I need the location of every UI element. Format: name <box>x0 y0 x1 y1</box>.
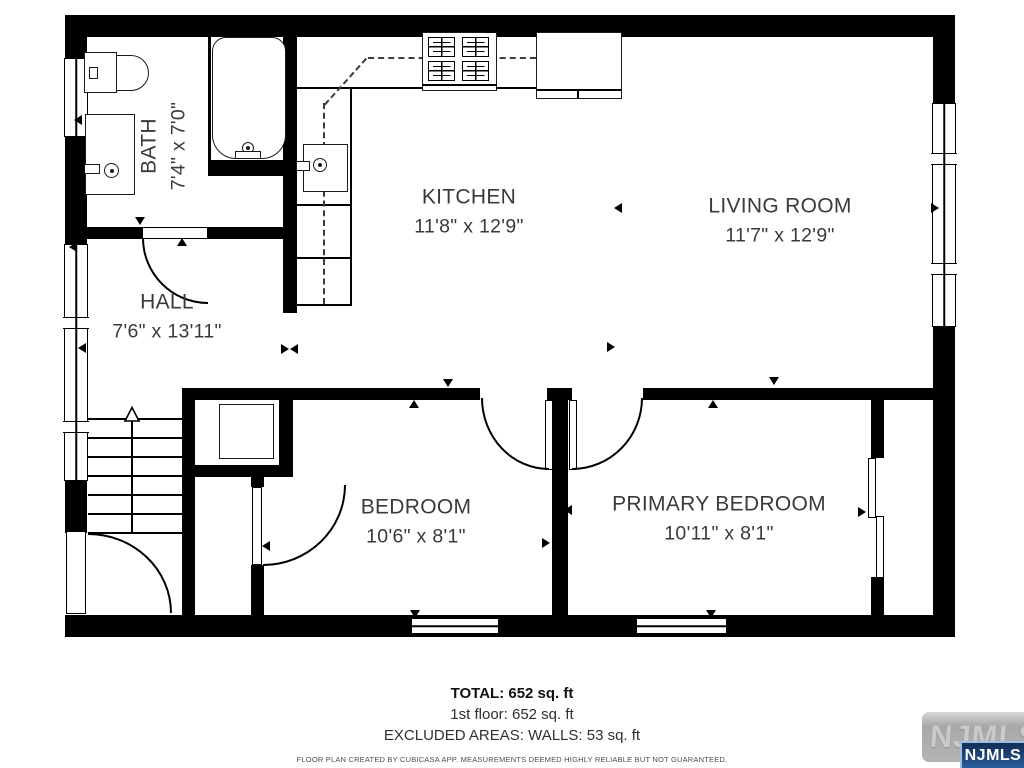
window-mullion <box>931 153 957 165</box>
room-dims: 7'4" x 7'0" <box>165 102 193 191</box>
direction-marker <box>409 400 419 408</box>
room-name: BATH <box>135 102 165 191</box>
room-name: HALL <box>112 288 221 318</box>
stove-burner <box>428 61 455 81</box>
primary-door-swing <box>572 398 643 470</box>
direction-marker <box>262 541 270 551</box>
room-name: KITCHEN <box>414 183 523 213</box>
disclaimer: FLOOR PLAN CREATED BY CUBICASA APP. MEAS… <box>0 755 1024 764</box>
stove-front-edge <box>422 84 497 86</box>
room-label-living-room: LIVING ROOM 11'7" x 12'9" <box>708 192 851 251</box>
wall-stairwell <box>182 400 195 615</box>
wall-bedrooms-divider <box>182 388 480 400</box>
direction-marker <box>769 25 779 33</box>
wall-top <box>65 15 955 37</box>
direction-marker <box>607 342 615 352</box>
front-door-swing <box>88 533 172 613</box>
primary-bedroom-window <box>636 618 727 634</box>
tub-faucet-base <box>235 151 261 159</box>
upper-cabinet-dashed-line <box>324 58 367 105</box>
wall-primary-right <box>871 577 884 615</box>
stair-up-arrow-icon <box>123 406 141 423</box>
room-label-bedroom: BEDROOM 10'6" x 8'1" <box>361 493 472 552</box>
direction-marker <box>564 505 572 515</box>
direction-marker <box>78 343 86 353</box>
direction-marker <box>542 538 550 548</box>
counter-edge <box>350 87 352 306</box>
room-dims: 10'11" x 8'1" <box>612 520 826 548</box>
direction-marker <box>769 377 779 385</box>
stove-burner <box>462 37 489 57</box>
stair-tread <box>88 532 182 534</box>
room-dims: 7'6" x 13'11" <box>112 318 221 346</box>
vanity-sink <box>104 163 119 178</box>
wall-closet-right <box>279 400 293 465</box>
sliding-door-panel <box>868 458 876 518</box>
direction-marker <box>74 115 82 125</box>
upper-cabinet-dashed-line <box>323 103 325 304</box>
sliding-door-panel <box>876 516 884 578</box>
stove-burner <box>428 37 455 57</box>
direction-marker <box>139 25 149 33</box>
refrigerator-door-split <box>577 91 579 99</box>
stair-tread <box>88 437 182 439</box>
room-dims: 11'8" x 12'9" <box>414 213 523 241</box>
refrigerator-front-edge <box>536 89 622 91</box>
wall-bath-bottom <box>65 227 142 239</box>
wall-bath-bottom <box>208 227 288 239</box>
counter-edge <box>297 87 422 89</box>
room-label-primary-bedroom: PRIMARY BEDROOM 10'11" x 8'1" <box>612 490 826 549</box>
wall-tub-divider <box>208 37 211 160</box>
stair-tread <box>88 456 182 458</box>
wall-bedroom-entry <box>251 565 264 615</box>
direction-marker <box>177 238 187 246</box>
hall-window <box>64 244 88 481</box>
direction-marker <box>858 507 866 517</box>
excluded-areas: EXCLUDED AREAS: WALLS: 53 sq. ft <box>0 725 1024 746</box>
direction-marker <box>706 610 716 618</box>
room-name: PRIMARY BEDROOM <box>612 490 826 520</box>
wall-right <box>933 327 955 615</box>
stair-tread <box>88 513 182 515</box>
direction-marker <box>708 400 718 408</box>
closet-door-panel <box>252 487 262 565</box>
room-dims: 11'7" x 12'9" <box>708 222 851 250</box>
vanity-faucet-handle <box>84 164 100 174</box>
water-heater <box>219 404 274 459</box>
direction-marker <box>69 242 77 252</box>
total-area: TOTAL: 652 sq. ft <box>0 683 1024 704</box>
counter-edge <box>497 87 537 89</box>
bedroom-door-swing <box>481 398 549 470</box>
closet-door-swing <box>263 485 346 566</box>
room-label-bath: BATH 7'4" x 7'0" <box>135 102 194 191</box>
front-door-panel <box>66 531 86 614</box>
wall-left <box>65 481 87 533</box>
area-summary: TOTAL: 652 sq. ft 1st floor: 652 sq. ft … <box>0 683 1024 764</box>
stove-burner <box>462 61 489 81</box>
bathroom-vanity <box>85 114 135 195</box>
direction-marker <box>281 344 289 354</box>
stair-direction-line <box>131 420 133 533</box>
stair-tread <box>88 475 182 477</box>
wall-closet-bottom <box>182 465 293 477</box>
wall-bottom <box>65 615 955 637</box>
first-floor-area: 1st floor: 652 sq. ft <box>0 704 1024 725</box>
living-room-window <box>932 103 956 327</box>
room-name: BEDROOM <box>361 493 472 523</box>
room-name: LIVING ROOM <box>708 192 851 222</box>
window-mullion <box>931 263 957 275</box>
kitchen-faucet <box>313 158 327 172</box>
kitchen-faucet-handle <box>296 161 310 171</box>
wall-bedrooms-divider <box>547 388 572 400</box>
wall-primary-right <box>871 400 884 458</box>
toilet-bowl <box>116 55 149 91</box>
room-label-kitchen: KITCHEN 11'8" x 12'9" <box>414 183 523 242</box>
wall-bedrooms-divider <box>643 388 955 400</box>
floor-plan: BATH 7'4" x 7'0" KITCHEN 11'8" x 12'9" L… <box>0 0 1024 768</box>
direction-marker <box>614 203 622 213</box>
njmls-logo-badge: NJMLS <box>960 741 1024 768</box>
wall-tub-bottom <box>208 160 288 176</box>
stove <box>422 32 497 91</box>
direction-marker <box>443 379 453 387</box>
counter-edge <box>297 304 352 306</box>
stair-tread <box>88 494 182 496</box>
direction-marker <box>410 610 420 618</box>
bathtub <box>212 37 286 159</box>
bedroom-window <box>411 618 499 634</box>
room-label-hall: HALL 7'6" x 13'11" <box>112 288 221 347</box>
window-mullion <box>63 317 89 329</box>
direction-marker <box>486 25 496 33</box>
direction-marker <box>135 217 145 225</box>
wall-right <box>933 15 955 103</box>
toilet-flush-button <box>89 67 98 79</box>
window-mullion <box>63 421 89 433</box>
direction-marker <box>931 203 939 213</box>
room-dims: 10'6" x 8'1" <box>361 523 472 551</box>
direction-marker <box>290 344 298 354</box>
